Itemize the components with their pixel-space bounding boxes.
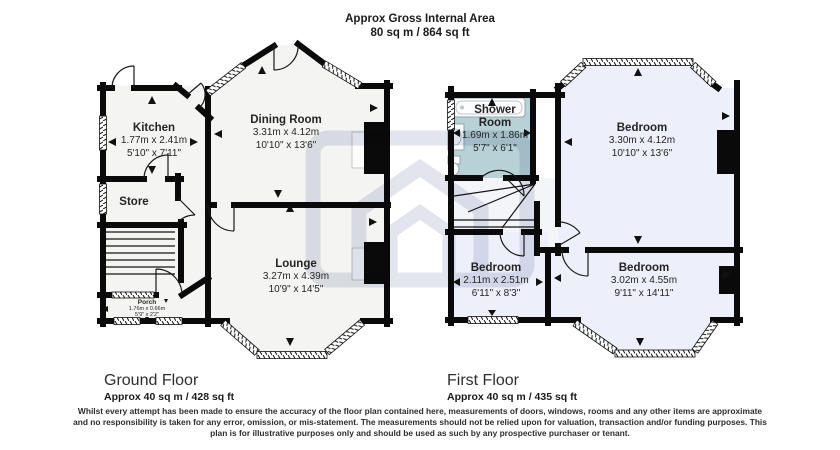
room-dim-imperial: 5'10" x 7'11" [121,148,187,161]
chimney-breast-lounge [364,242,385,284]
room-label-store: Store [119,196,148,209]
room-name: Store [119,196,148,209]
room-dim-imperial: 10'10" x 13'6" [609,148,675,161]
room-label-kitchen: Kitchen 1.77m x 2.41m 5'10" x 7'11" [121,122,187,160]
room-name: Lounge [263,258,329,271]
ground-floor-plan: Kitchen 1.77m x 2.41m 5'10" x 7'11" Dini… [86,26,396,376]
room-dim-imperial: 9'11" x 14'11" [611,288,677,301]
chimney-breast-rear [717,130,737,174]
room-dim-metric: 3.27m x 4.39m [263,271,329,284]
ground-floor-area: Approx 40 sq m / 428 sq ft [104,391,234,404]
room-dim-imperial: 5'7" x 6'1" [459,143,531,156]
room-dim-metric: 3.30m x 4.12m [609,135,675,148]
room-name: Shower Room [459,104,531,130]
room-label-bedroom-rear: Bedroom 3.30m x 4.12m 10'10" x 13'6" [609,122,675,160]
room-dim-metric: 1.77m x 2.41m [121,135,187,148]
first-floor-plan: Shower Room 1.69m x 1.86m 5'7" x 6'1" Be… [438,26,748,376]
room-dim-metric: 3.31m x 4.12m [250,127,322,140]
first-floor-area: Approx 40 sq m / 435 sq ft [447,391,577,404]
floorplan-page: Approx Gross Internal Area 80 sq m / 864… [0,0,840,450]
chimney-breast-dining [364,122,385,174]
first-floor-title: First Floor [447,372,519,390]
room-dim-imperial: 5'9" x 2'2" [129,312,165,318]
room-dim-metric: 1.69m x 1.86m [459,130,531,143]
first-floor-svg [438,26,748,376]
chimney-breast-front [719,266,737,294]
room-dim-imperial: 10'10" x 13'6" [250,140,322,153]
room-name: Porch [129,299,165,306]
room-dim-imperial: 6'11" x 8'3" [463,288,528,301]
room-name: Bedroom [611,262,677,275]
room-label-lounge: Lounge 3.27m x 4.39m 10'9" x 14'5" [263,258,329,296]
room-name: Bedroom [609,122,675,135]
room-dim-metric: 3.02m x 4.55m [611,275,677,288]
ground-floor-title: Ground Floor [104,372,198,390]
gross-area-line1: Approx Gross Internal Area [0,12,840,26]
room-label-dining: Dining Room 3.31m x 4.12m 10'10" x 13'6" [250,114,322,152]
room-name: Bedroom [463,262,528,275]
room-name: Kitchen [121,122,187,135]
room-dim-imperial: 10'9" x 14'5" [263,284,329,297]
room-name: Dining Room [250,114,322,127]
room-label-shower: Shower Room 1.69m x 1.86m 5'7" x 6'1" [459,104,531,155]
disclaimer-text: Whilst every attempt has been made to en… [70,406,770,438]
room-dim-metric: 2.11m x 2.51m [463,275,528,288]
room-label-bedroom-front: Bedroom 3.02m x 4.55m 9'11" x 14'11" [611,262,677,300]
room-label-bedroom-middle: Bedroom 2.11m x 2.51m 6'11" x 8'3" [463,262,528,300]
room-label-porch: Porch 1.76m x 0.66m 5'9" x 2'2" [129,299,165,318]
